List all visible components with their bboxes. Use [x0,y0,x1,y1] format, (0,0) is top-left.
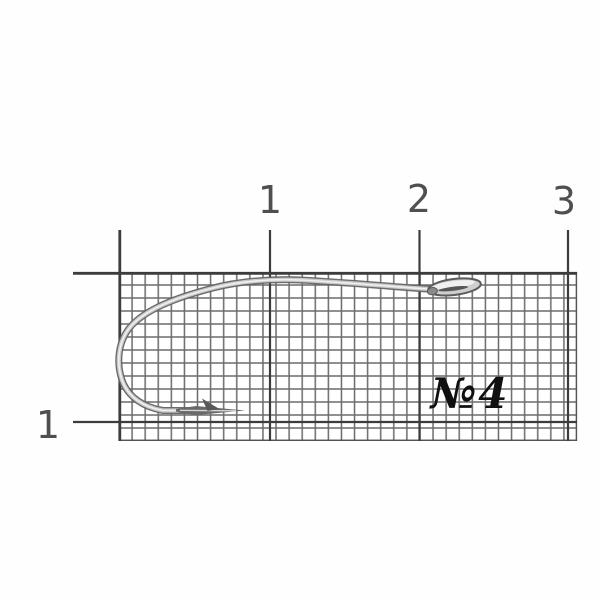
ruler-label-top-1: 1 [258,181,282,219]
hook-size-label: №4 [431,373,510,415]
product-photo: 1 2 3 1 №4 [0,0,600,600]
ruler-label-left-1: 1 [36,406,60,444]
ruler-label-top-3: 3 [552,182,576,220]
ruler-label-top-2: 2 [407,180,431,218]
graph-paper-canvas [0,0,600,600]
